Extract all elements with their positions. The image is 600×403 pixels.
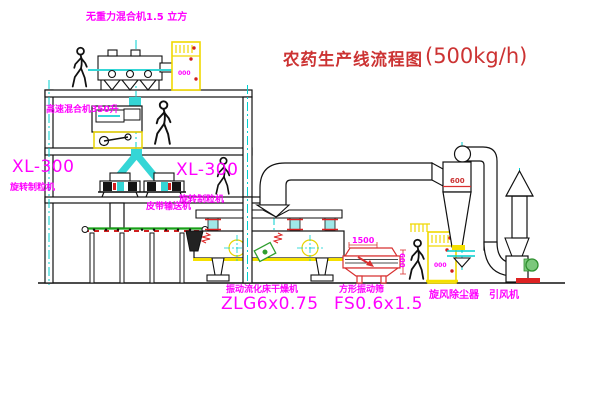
square-vibrating-sieve	[343, 242, 406, 283]
granulator-left-model: XL-300	[12, 159, 74, 176]
granulator-left-label: 旋转制粒机	[10, 184, 55, 193]
fluid-bed-dryer	[186, 210, 345, 281]
fan-base	[516, 278, 540, 283]
dryer-inlet-ports	[205, 218, 338, 230]
high-speed-mixer-label: 高速混合机350升	[46, 106, 119, 115]
title-capacity: (500kg/h)	[425, 44, 527, 68]
process-flow-diagram: 农药生产线流程图 (500kg/h) 无重力混合机1.5 立方 高速混合机350…	[0, 0, 600, 403]
sieve-width-dim: 600	[398, 253, 405, 268]
granulator-left	[98, 173, 142, 197]
fan-motor-icon	[526, 259, 538, 271]
gravity-free-mixer	[88, 50, 174, 90]
sieve-length-dim: 1500	[352, 237, 374, 245]
title-text: 农药生产线流程图	[283, 46, 423, 70]
worker-figure-1	[73, 48, 87, 87]
exhaust-stack	[506, 171, 533, 238]
belt-conveyor-label: 皮带输送机	[146, 203, 191, 212]
dryer-model: ZLG6x0.75	[221, 296, 319, 313]
control-panel-1-display: 000	[178, 71, 191, 77]
control-panel-2-display: 000	[434, 263, 447, 269]
gravity-mixer-label: 无重力混合机1.5 立方	[86, 13, 187, 23]
cyclone-diameter-dim: 600	[450, 178, 465, 185]
control-cabinet-1	[172, 42, 200, 90]
worker-figure-2	[155, 101, 170, 144]
granulator-right-model: XL-300	[176, 162, 238, 179]
fan-label: 引风机	[489, 291, 519, 301]
diagram-title: 农药生产线流程图 (500kg/h)	[283, 46, 527, 70]
cable-tray	[410, 224, 430, 232]
exhaust-duct	[257, 163, 432, 217]
worker-figure-4	[410, 240, 424, 279]
sieve-model: FS0.6x1.5	[334, 296, 423, 313]
rain-cap-icon	[506, 171, 533, 196]
feed-chute	[110, 203, 124, 228]
cyclone-label: 旋风除尘器	[429, 291, 479, 301]
induced-draft-fan	[484, 238, 540, 283]
